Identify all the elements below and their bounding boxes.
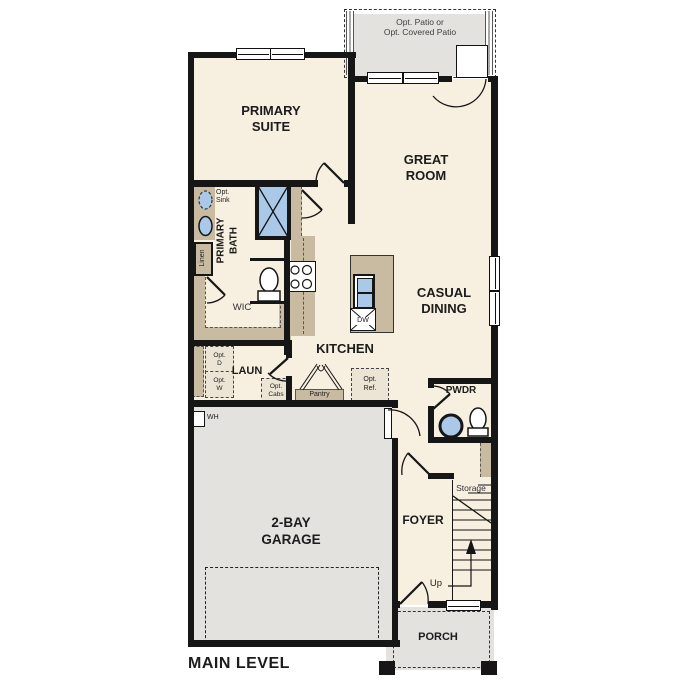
stairs (453, 480, 492, 601)
bath-door-arc (302, 210, 322, 218)
hall-foyer-door-arc (402, 453, 408, 475)
vanity-sinks (199, 191, 212, 236)
garage-label: 2-BAYGARAGE (231, 515, 351, 549)
pwdr-label: PWDR (441, 385, 481, 398)
pantry-doors (300, 364, 342, 390)
stove-burners (291, 266, 312, 289)
sink-bowl (199, 217, 212, 236)
wic-label: WIC (222, 303, 262, 314)
floor-plan: Opt. Patio orOpt. Covered Patio (0, 0, 687, 687)
shower-x (258, 186, 288, 237)
pwdr-toilet (468, 408, 488, 436)
kitchen-label: KITCHEN (305, 341, 385, 357)
suite-door-leaf (324, 163, 344, 183)
opt-sink-bowl (199, 191, 212, 209)
up-label: Up (426, 579, 446, 590)
porch-label: PORCH (408, 631, 468, 645)
pantry-label: Pantry (295, 391, 344, 399)
wic-door-arc (207, 295, 225, 303)
bath-door-leaf (302, 190, 322, 210)
wh-label: WH (207, 414, 223, 422)
dw-label: DW (353, 317, 373, 325)
suite-door-arc (316, 163, 324, 183)
hall-foyer-door-leaf (408, 453, 430, 475)
casual-dining-label: CASUALDINING (384, 285, 504, 318)
front-door-leaf (400, 582, 422, 604)
foyer-label: FOYER (393, 513, 453, 528)
great-room-label: GREATROOM (366, 152, 486, 185)
laundry-label: LAUN (227, 365, 267, 379)
patio-door-arc (433, 79, 486, 107)
bath-toilet (258, 268, 280, 301)
main-level-label: MAIN LEVEL (188, 654, 308, 674)
primary-bath-label: PRIMARYBATH (216, 206, 241, 276)
pwdr-sink (440, 415, 462, 437)
garage-entry-door-arc (388, 410, 420, 436)
linen-label: Linen (199, 243, 207, 273)
opt-sink-label: Opt.Sink (216, 189, 246, 205)
storage-label: Storage (451, 484, 491, 494)
laundry-door-leaf (270, 358, 288, 374)
patio-label: Opt. Patio orOpt. Covered Patio (354, 18, 486, 38)
primary-suite-label: PRIMARYSUITE (211, 103, 331, 136)
wic-door-leaf (207, 277, 225, 295)
